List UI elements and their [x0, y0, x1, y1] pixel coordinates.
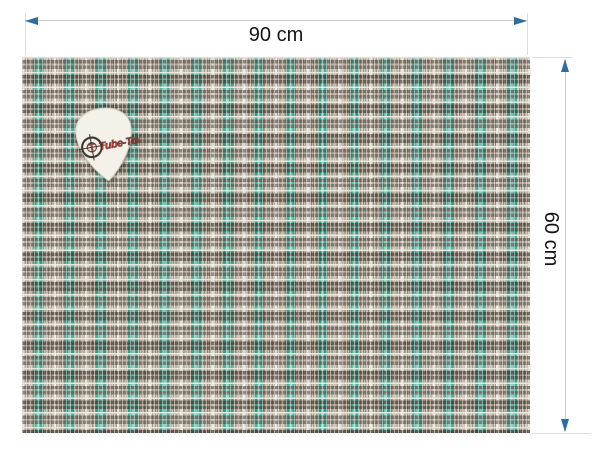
arrow-up-icon	[561, 59, 569, 72]
height-dimension-line	[565, 60, 566, 431]
width-extension-line-right	[527, 13, 528, 55]
arrow-right-icon	[514, 17, 527, 25]
product-photo: 90 cm 60 cm T Tube-Town	[0, 0, 600, 450]
height-extension-line-bottom	[532, 433, 591, 434]
width-dimension-line	[25, 20, 527, 21]
height-extension-line-top	[532, 57, 573, 58]
width-label: 90 cm	[249, 25, 303, 45]
arrow-left-icon	[25, 17, 38, 25]
height-label: 60 cm	[541, 212, 561, 266]
arrow-down-icon	[561, 419, 569, 432]
guitar-pick: T Tube-Town	[67, 103, 143, 188]
